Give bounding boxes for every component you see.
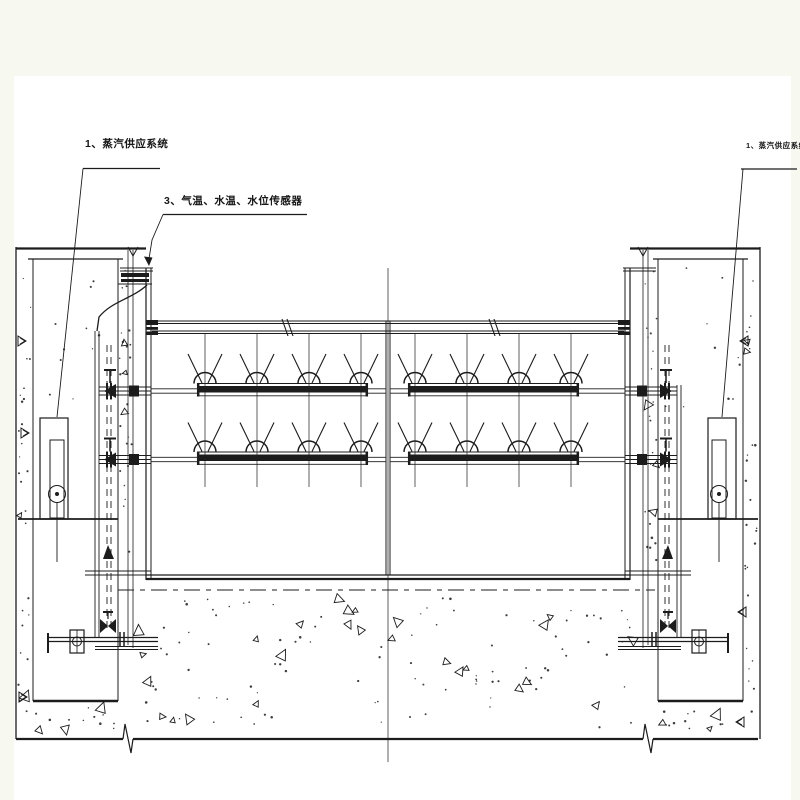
label-steam-supply-system-left: 1、蒸汽供应系统 bbox=[85, 139, 168, 151]
gate-steam-heating-section-drawing bbox=[0, 0, 800, 800]
paper-area bbox=[14, 76, 791, 800]
label-air-water-temp-level-sensors: 3、气温、水温、水位传感器 bbox=[164, 196, 302, 208]
label-steam-supply-system-right: 1、蒸汽供应系统 bbox=[746, 142, 800, 150]
engineering-drawing-canvas: 1、蒸汽供应系统 3、气温、水温、水位传感器 1、蒸汽供应系统 bbox=[0, 0, 800, 800]
